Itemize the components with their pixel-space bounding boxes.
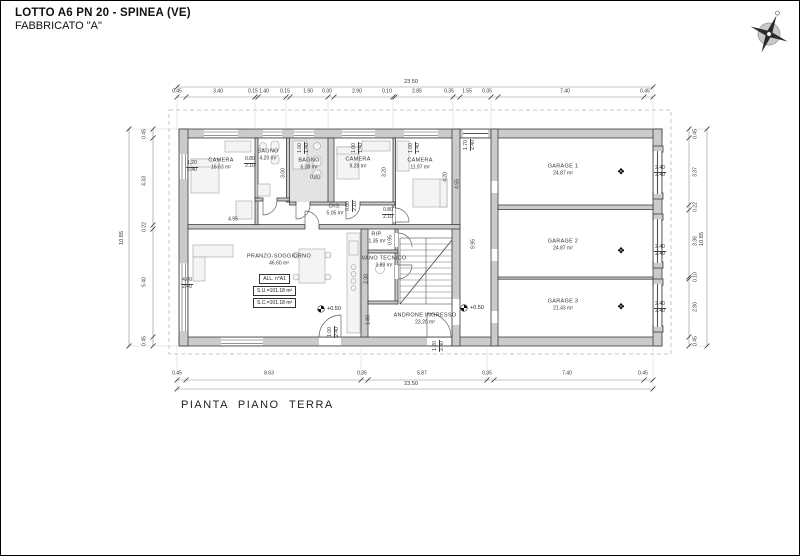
staircase — [400, 238, 452, 304]
wall-openings — [180, 130, 661, 345]
level-symbol-icon — [317, 305, 325, 313]
level-mark: +0.50 — [460, 304, 484, 312]
level-value: +0.50 — [327, 306, 341, 312]
walls-layer — [179, 129, 663, 346]
level-value: +0.50 — [470, 305, 484, 311]
superficie-utile: S.U.=101.18 m² — [253, 286, 296, 296]
allegato-number: ALL. n°A1 — [259, 274, 290, 284]
floor-plan-drawing — [1, 1, 799, 555]
plan-caption: PIANTA PIANO TERRA — [181, 399, 334, 411]
level-mark: +0.50 — [317, 305, 341, 313]
drawing-sheet: LOTTO A6 PN 20 - SPINEA (VE) FABBRICATO … — [0, 0, 800, 556]
compass-rose-icon — [743, 4, 797, 60]
superficie-commerciale: S.C.=101.18 m² — [253, 298, 296, 308]
window-glazing-lines — [182, 132, 658, 343]
level-symbol-icon — [460, 304, 468, 312]
area-summary-box: ALL. n°A1 S.U.=101.18 m² S.C.=101.18 m² — [253, 274, 296, 308]
